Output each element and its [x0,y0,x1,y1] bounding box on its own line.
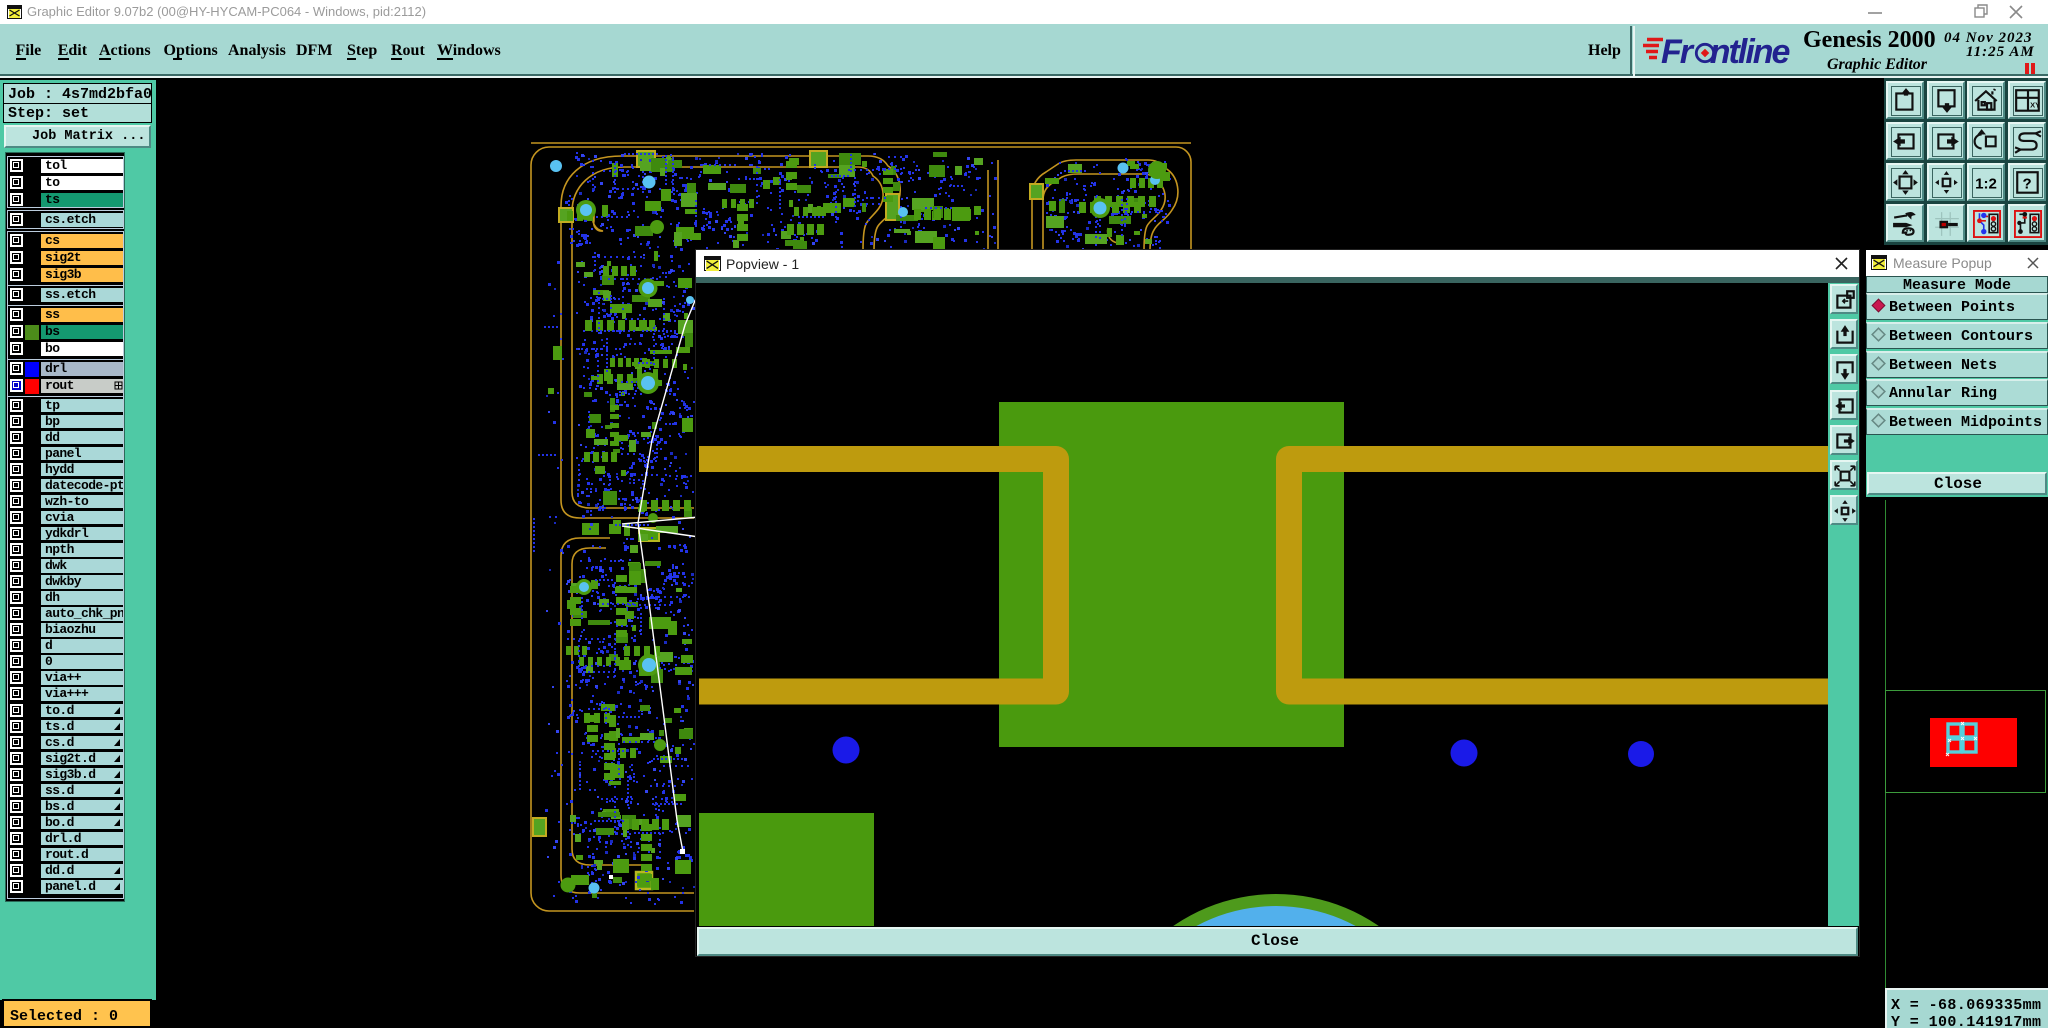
svg-text:1:2: 1:2 [1975,175,1997,192]
svg-text:XY: XY [2030,100,2040,109]
svg-text:?: ? [2022,175,2031,193]
